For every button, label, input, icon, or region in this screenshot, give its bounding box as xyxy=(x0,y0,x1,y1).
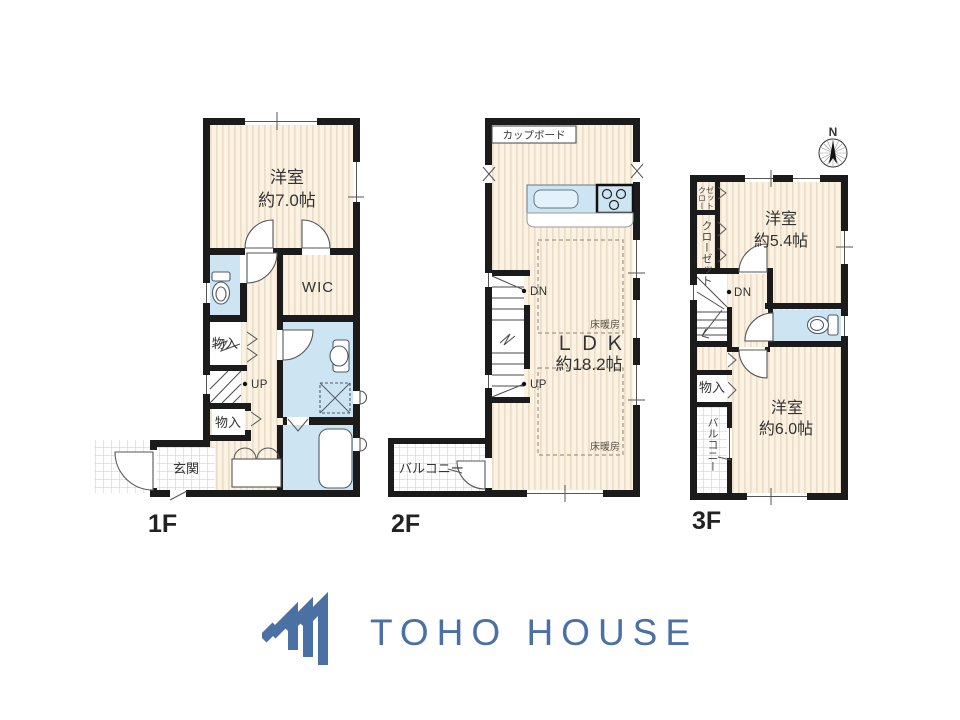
brand-logo-text: TOHO HOUSE xyxy=(370,612,698,654)
1f-entrance-label: 玄関 xyxy=(173,461,199,476)
3f-balcony-label: バルコニー xyxy=(706,417,719,472)
1f-storage-upper-label: 物入 xyxy=(212,336,238,351)
2f-floor-heating-lower-label: 床暖房 xyxy=(590,440,620,453)
3f-floor-label: 3F xyxy=(692,507,721,535)
1f-bathtub-icon xyxy=(319,429,352,488)
2f-ldk-label: ＬＤＫ xyxy=(555,333,630,355)
floorplan-page: { "colors": { "wall": "#1B1B1B", "floor_… xyxy=(0,0,960,720)
2f-cupboard: カップボード xyxy=(492,126,576,143)
2f-sink-icon xyxy=(534,190,578,208)
floorplan-1f: 洋室 約7.0帖 WIC 物入 物入 玄関 UP 1F xyxy=(95,112,367,538)
1f-room1-size: 約7.0帖 xyxy=(258,191,316,210)
2f-up-label: UP xyxy=(530,379,547,391)
1f-storage-lower-label: 物入 xyxy=(215,415,241,430)
1f-floor-label: 1F xyxy=(148,510,177,538)
1f-sink-icon xyxy=(330,340,349,372)
2f-stairs-floor xyxy=(492,276,524,397)
1f-up-label: UP xyxy=(251,379,268,391)
2f-cupboard-label: カップボード xyxy=(503,130,566,142)
3f-room2-label: 洋室 xyxy=(771,399,803,417)
toho-house-mark-icon xyxy=(262,592,354,674)
compass-n-label: N xyxy=(829,125,838,139)
2f-dn-label: DN xyxy=(530,286,548,298)
2f-floor-label: 2F xyxy=(391,510,420,538)
3f-closet-label: クローゼット xyxy=(700,220,713,286)
3f-room1-label: 洋室 xyxy=(765,210,797,228)
2f-ldk-size: 約18.2帖 xyxy=(555,355,622,374)
3f-storage-label: 物入 xyxy=(699,380,725,395)
compass-icon: N xyxy=(819,125,847,167)
floorplan-2f: カップボード 床暖房 床暖房 ＬＤＫ 約18.2帖 DN UP バルコニー 2F xyxy=(388,118,645,538)
2f-floor-heating-upper-label: 床暖房 xyxy=(590,318,620,331)
3f-room2-size: 約6.0帖 xyxy=(759,420,813,438)
2f-kitchen-counter xyxy=(527,185,633,227)
2f-balcony-label: バルコニー xyxy=(399,461,464,476)
1f-toilet-icon xyxy=(212,272,230,304)
3f-toilet-icon xyxy=(808,315,839,335)
floorplan-3f: N 洋室 約5.4帖 クロー ゼット クローゼット 物入 バルコニー 洋室 約6… xyxy=(690,125,853,535)
floorplan-drawing: 洋室 約7.0帖 WIC 物入 物入 玄関 UP 1F xyxy=(0,0,960,560)
3f-closet-small-label-2: ゼット xyxy=(706,186,715,210)
1f-room1-label: 洋室 xyxy=(270,168,304,187)
brand-logo: TOHO HOUSE xyxy=(0,592,960,674)
3f-dn-label: DN xyxy=(734,287,752,299)
3f-room1-size: 約5.4帖 xyxy=(754,232,808,250)
1f-wic-label: WIC xyxy=(302,279,334,296)
